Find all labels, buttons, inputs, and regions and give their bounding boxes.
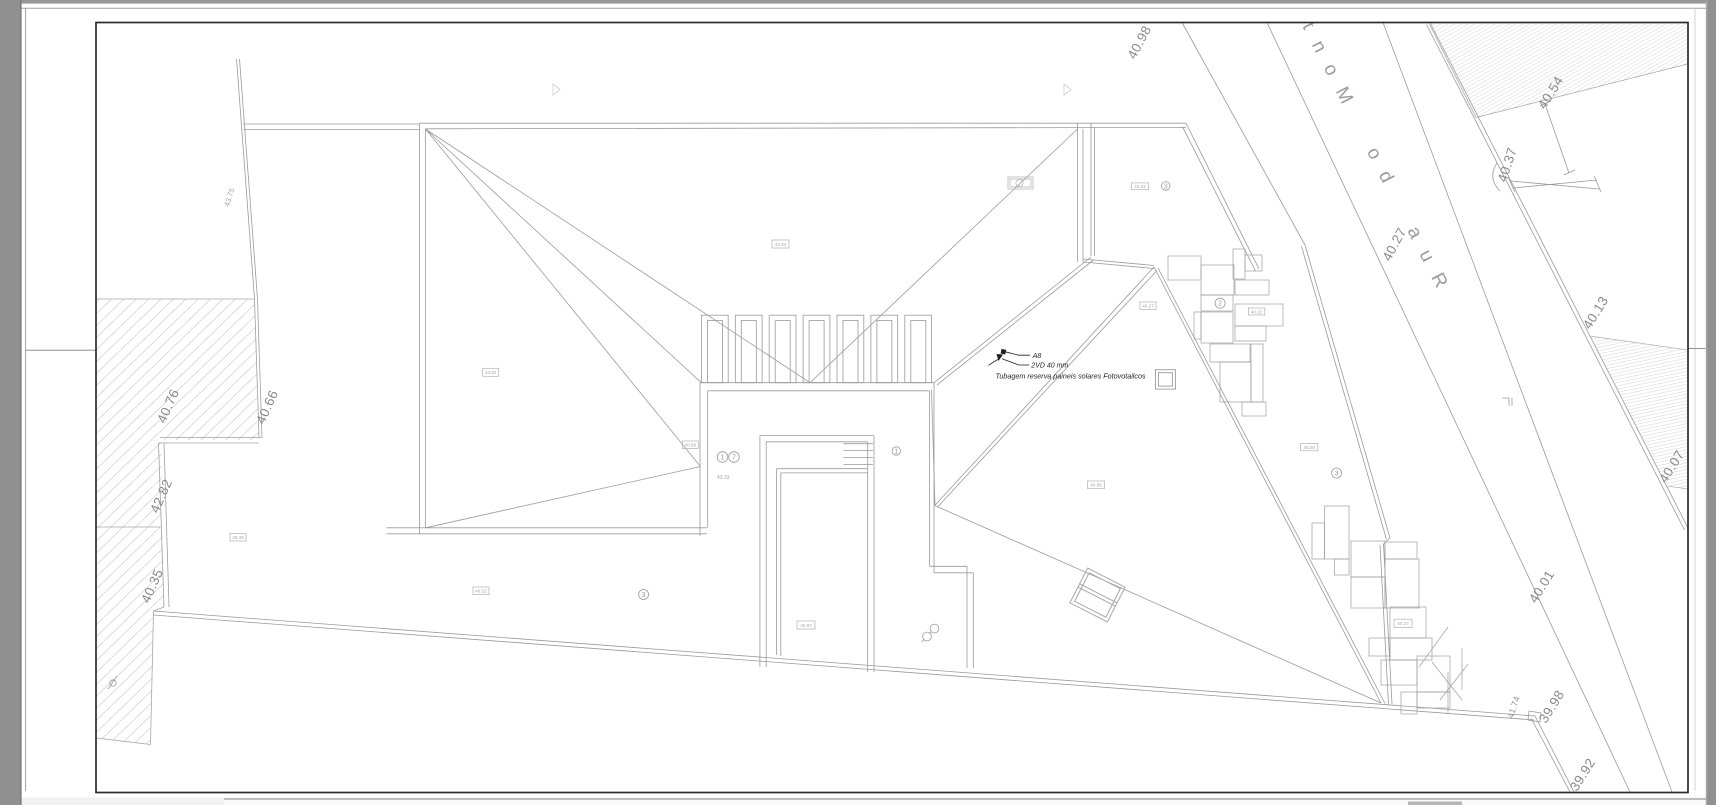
svg-text:40.22: 40.22 (1251, 309, 1263, 314)
svg-text:1: 1 (894, 449, 898, 456)
svg-text:7: 7 (732, 455, 736, 462)
svg-text:43.33: 43.33 (717, 475, 730, 481)
svg-text:43.22: 43.22 (1134, 184, 1146, 189)
svg-text:2: 2 (1218, 301, 1222, 308)
svg-text:40.27: 40.27 (1397, 621, 1409, 626)
svg-text:2VD 40 mm: 2VD 40 mm (1030, 363, 1068, 370)
svg-text:43.52: 43.52 (485, 370, 497, 375)
svg-text:40.22: 40.22 (475, 589, 487, 594)
svg-text:40.99: 40.99 (685, 443, 697, 448)
svg-text:3: 3 (642, 592, 646, 599)
svg-text:3: 3 (1164, 183, 1168, 190)
svg-text:1: 1 (721, 455, 725, 462)
svg-text:40.95: 40.95 (1090, 483, 1102, 488)
svg-text:40.27: 40.27 (1142, 304, 1154, 309)
svg-text:Tubagem reserva paineis solare: Tubagem reserva paineis solares Fotovota… (996, 372, 1146, 381)
svg-text:40.07: 40.07 (800, 623, 812, 628)
svg-text:A8: A8 (1032, 353, 1042, 360)
svg-text:44.84: 44.84 (775, 242, 787, 247)
svg-text:3: 3 (1335, 471, 1339, 478)
svg-text:40.35: 40.35 (232, 535, 244, 540)
svg-text:40.20: 40.20 (1303, 445, 1315, 450)
